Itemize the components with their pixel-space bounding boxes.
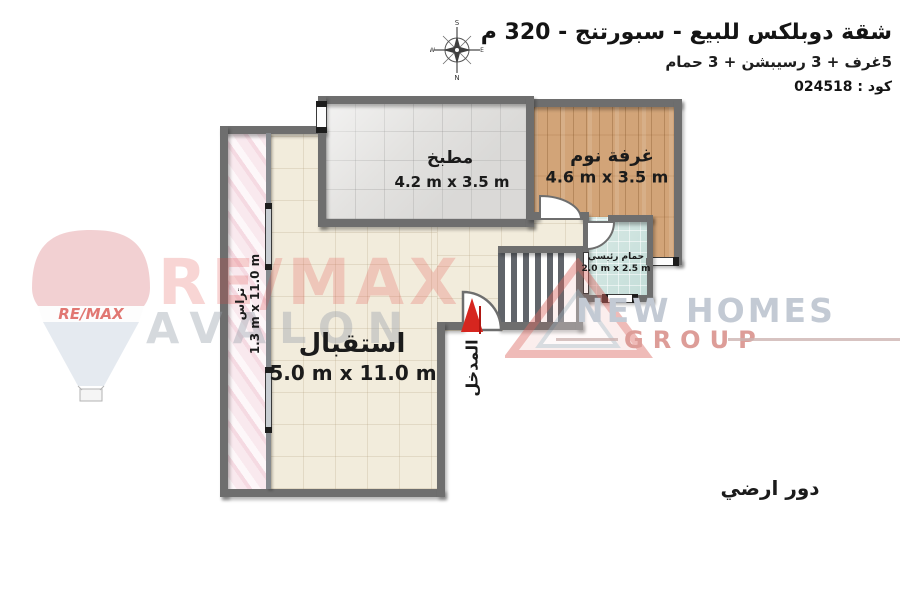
terrace-label-block: تراس 1.3 m x 11.0 m bbox=[233, 254, 263, 354]
compass-icon: S N W E bbox=[430, 18, 484, 80]
bathroom-window bbox=[607, 294, 633, 303]
entrance-label: المدخل bbox=[463, 339, 482, 396]
listing-code: كود : 024518 bbox=[794, 79, 892, 95]
stair-bar bbox=[498, 253, 505, 322]
stair-bar bbox=[511, 253, 517, 322]
floor-level-label: دور ارضي bbox=[720, 476, 819, 500]
wall-bedroom-top bbox=[527, 99, 682, 107]
bedroom-window bbox=[652, 257, 674, 266]
group-line-left bbox=[556, 338, 618, 341]
remax-balloon-icon: RE/MAX bbox=[20, 224, 162, 402]
floorplan-page: RE/MAX RE/MAX AVALON NEW HOMES GROUP مطب… bbox=[0, 0, 900, 599]
hall-floor-lower bbox=[437, 256, 503, 331]
bathroom-label: حمام رئيسي bbox=[588, 252, 644, 262]
wall-stairs-right bbox=[576, 246, 583, 330]
stair-bar bbox=[547, 253, 553, 322]
wall-terrace-divider bbox=[266, 133, 271, 489]
bedroom-label: غرفة نوم bbox=[570, 146, 654, 167]
group-line-right bbox=[728, 338, 900, 341]
wall-kitchen-bottom bbox=[318, 219, 534, 227]
wall-bedroom-bottom-a bbox=[527, 212, 539, 220]
listing-subtitle: 5غرف + 3 رسيبشن + 3 حمام bbox=[665, 53, 892, 71]
wall-outer-left bbox=[220, 126, 228, 497]
kitchen-dims: 4.2 m x 3.5 m bbox=[395, 173, 510, 191]
wall-bottom bbox=[220, 489, 445, 497]
compass-top-letter: S bbox=[455, 19, 460, 27]
terrace-window-upper bbox=[265, 208, 272, 265]
wall-kitchen-top bbox=[318, 96, 534, 104]
wall-bedroom-right bbox=[674, 99, 682, 265]
staircase bbox=[498, 246, 583, 330]
kitchen-label: مطبخ bbox=[427, 148, 473, 168]
bathroom-dims: 2.0 m x 2.5 m bbox=[582, 264, 651, 274]
wall-reception-right bbox=[437, 322, 445, 497]
bedroom-dims: 4.6 m x 3.5 m bbox=[546, 168, 669, 187]
terrace-dims: 1.3 m x 11.0 m bbox=[248, 254, 262, 354]
wall-stairs-bottom bbox=[498, 322, 583, 330]
wall-stairs-top bbox=[498, 246, 583, 253]
balloon-wordmark: RE/MAX bbox=[58, 305, 125, 323]
reception-dims: 5.0 m x 11.0 m bbox=[269, 361, 436, 385]
compass-left-letter: W bbox=[430, 47, 435, 54]
compass-right-letter: E bbox=[480, 47, 484, 54]
reception-label: استقبال bbox=[299, 329, 406, 359]
kitchen-window bbox=[316, 106, 327, 128]
wall-kitchen-right bbox=[526, 96, 534, 227]
stair-bar bbox=[523, 253, 529, 322]
stair-bar bbox=[558, 253, 564, 322]
listing-title: شقة دوبلكس للبيع - سبورتنج - 320 م bbox=[481, 20, 892, 45]
stair-bar bbox=[535, 253, 541, 322]
compass-bottom-letter: N bbox=[454, 74, 459, 80]
wall-bathroom-right bbox=[647, 215, 653, 302]
terrace-label: تراس bbox=[233, 288, 247, 321]
wall-top-left bbox=[220, 126, 326, 134]
